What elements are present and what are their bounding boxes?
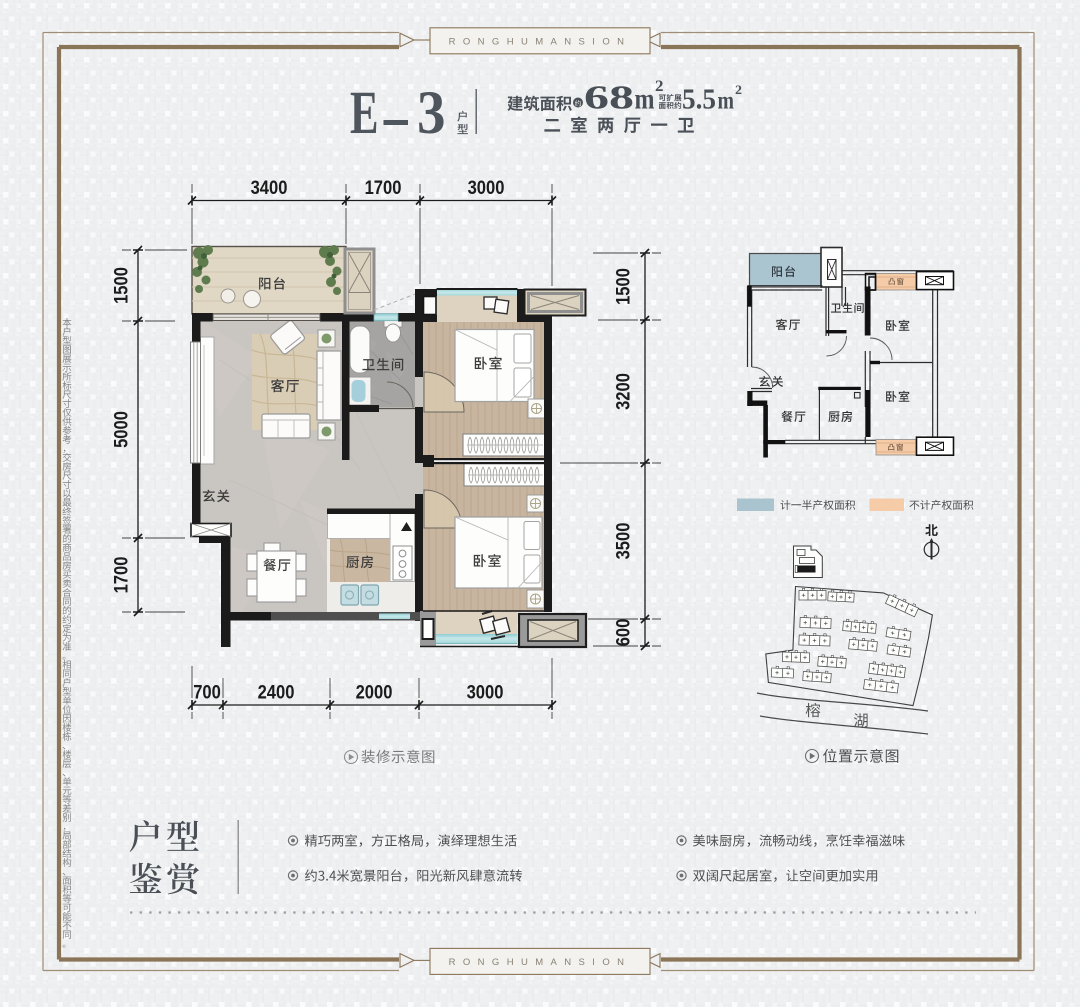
svg-text:1700: 1700 <box>365 177 402 199</box>
svg-text:m: m <box>635 83 655 116</box>
svg-text:5000: 5000 <box>111 411 133 448</box>
svg-text:2: 2 <box>655 78 664 95</box>
svg-text:68: 68 <box>584 80 634 117</box>
svg-text:2000: 2000 <box>356 682 393 704</box>
svg-text:3000: 3000 <box>468 177 505 199</box>
svg-text:600: 600 <box>613 619 635 647</box>
svg-text:1500: 1500 <box>111 267 133 304</box>
svg-text:RONGHUMANSION: RONGHUMANSION <box>449 37 632 48</box>
svg-text:3: 3 <box>417 80 446 147</box>
svg-text:1500: 1500 <box>613 268 635 305</box>
svg-text:2400: 2400 <box>258 682 295 704</box>
svg-text:m: m <box>718 88 735 115</box>
svg-text:1700: 1700 <box>111 556 133 593</box>
svg-text:5.5: 5.5 <box>682 85 716 116</box>
svg-text:RONGHUMANSION: RONGHUMANSION <box>449 957 632 968</box>
svg-text:3200: 3200 <box>613 373 635 410</box>
svg-text:3000: 3000 <box>467 682 504 704</box>
svg-text:E: E <box>350 80 379 147</box>
svg-text:700: 700 <box>193 682 221 704</box>
svg-text:3400: 3400 <box>251 177 288 199</box>
svg-text:2: 2 <box>735 82 742 97</box>
svg-text:3500: 3500 <box>613 522 635 559</box>
